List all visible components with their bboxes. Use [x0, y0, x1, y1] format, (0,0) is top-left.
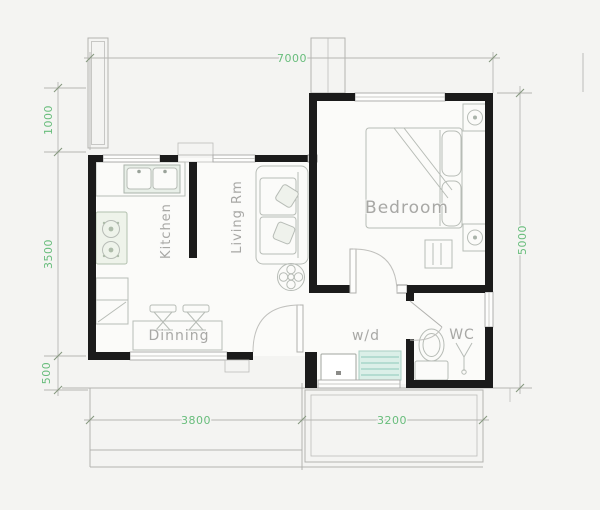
sofa [256, 166, 308, 264]
dryer-shelf [359, 351, 401, 380]
room-label-bedroom: Bedroom [365, 198, 449, 218]
washing-machine [321, 354, 356, 381]
room-label-wd: w/d [352, 328, 380, 344]
window [355, 93, 445, 101]
bed-pillow [442, 131, 461, 176]
window [318, 380, 400, 388]
dim-left-mid: 3500 [42, 239, 55, 269]
gas-stove [96, 212, 127, 264]
room-label-kitchen: Kitchen [159, 203, 174, 259]
nightstand-lamp [463, 224, 487, 251]
dim-left-lower: 500 [40, 362, 53, 385]
room-label-wc: WC [449, 327, 475, 343]
room-label-living: Living Rm [230, 180, 245, 253]
window [213, 155, 255, 162]
kitchen-counter [96, 162, 185, 196]
dim-left-upper: 1000 [42, 105, 55, 135]
window [485, 292, 493, 327]
bedroom-partition [309, 93, 317, 292]
nightstand-lamp [463, 104, 487, 131]
floor-plan-drawing: Kitchen Living Rm Bedroom Dinning w/d WC… [0, 0, 600, 510]
floor-plan-page: Kitchen Living Rm Bedroom Dinning w/d WC… [0, 0, 600, 510]
bedroom-bench [425, 240, 452, 268]
window [103, 155, 160, 162]
dim-bottom-left: 3800 [181, 414, 211, 427]
kitchen-partition [189, 162, 197, 258]
room-label-dinning: Dinning [148, 328, 209, 344]
dim-bottom-right: 3200 [377, 414, 407, 427]
dim-right: 5000 [516, 225, 529, 255]
window [130, 352, 227, 360]
dining-cabinet [96, 278, 128, 324]
dim-top: 7000 [277, 52, 307, 65]
